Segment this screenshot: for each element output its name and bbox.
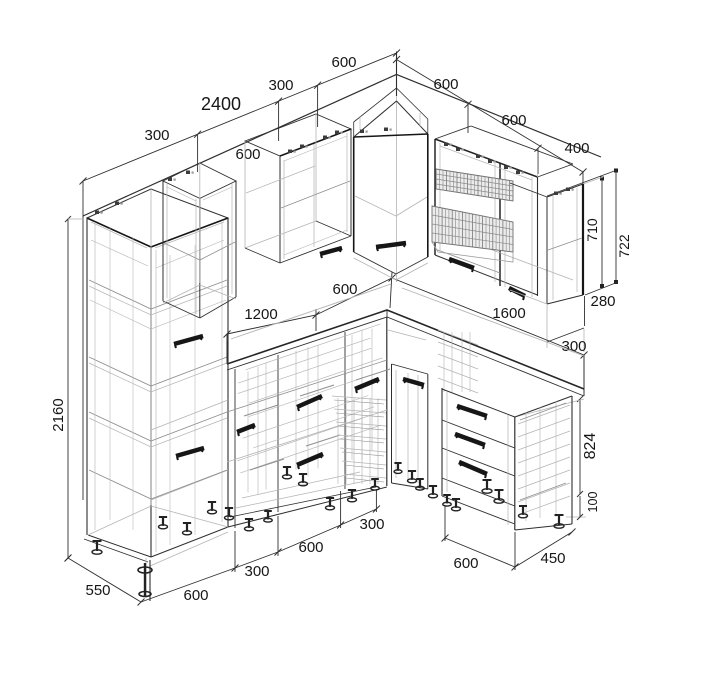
svg-text:300: 300 — [144, 127, 169, 144]
svg-text:600: 600 — [331, 54, 356, 71]
svg-text:710: 710 — [584, 218, 600, 242]
svg-text:600: 600 — [332, 281, 357, 298]
svg-text:280: 280 — [590, 293, 615, 310]
svg-text:1200: 1200 — [244, 306, 277, 323]
svg-text:450: 450 — [540, 550, 565, 567]
svg-text:600: 600 — [183, 587, 208, 604]
svg-text:722: 722 — [616, 234, 632, 258]
svg-text:600: 600 — [235, 146, 260, 163]
svg-text:100: 100 — [586, 492, 600, 513]
svg-text:1600: 1600 — [492, 305, 525, 322]
svg-text:400: 400 — [564, 140, 589, 157]
svg-text:824: 824 — [582, 433, 599, 460]
svg-text:600: 600 — [433, 76, 458, 93]
svg-text:300: 300 — [244, 563, 269, 580]
svg-text:300: 300 — [268, 77, 293, 94]
svg-text:600: 600 — [453, 555, 478, 572]
svg-text:300: 300 — [359, 516, 384, 533]
svg-text:550: 550 — [85, 582, 110, 599]
svg-text:600: 600 — [501, 112, 526, 129]
svg-text:2400: 2400 — [201, 94, 241, 114]
svg-text:2160: 2160 — [50, 398, 67, 431]
svg-text:600: 600 — [298, 539, 323, 556]
